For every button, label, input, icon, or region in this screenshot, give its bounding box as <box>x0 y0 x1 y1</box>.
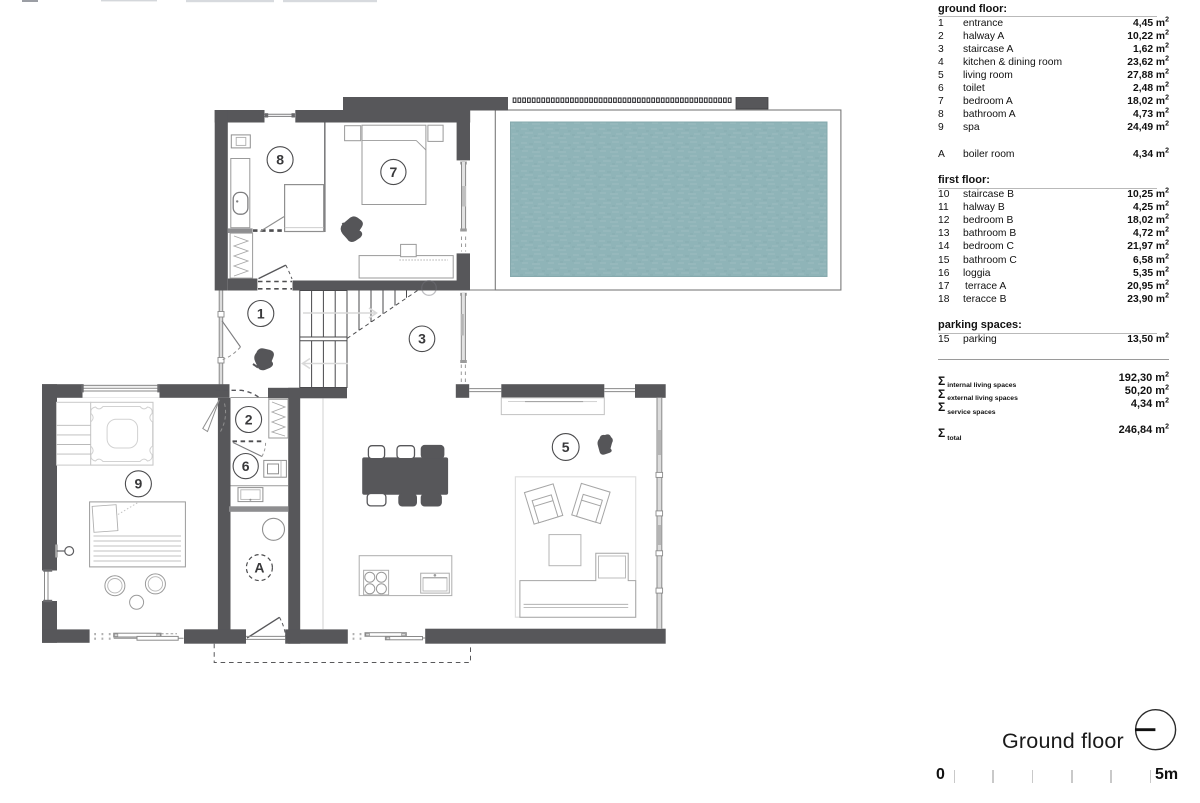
svg-text:2: 2 <box>245 411 253 427</box>
svg-text:9: 9 <box>135 476 143 492</box>
svg-text:7: 7 <box>390 164 398 180</box>
svg-text:6: 6 <box>242 458 250 474</box>
svg-text:3: 3 <box>418 331 426 347</box>
svg-text:5: 5 <box>562 439 570 455</box>
svg-text:8: 8 <box>276 152 284 168</box>
svg-text:A: A <box>254 560 264 576</box>
svg-text:1: 1 <box>257 305 265 321</box>
